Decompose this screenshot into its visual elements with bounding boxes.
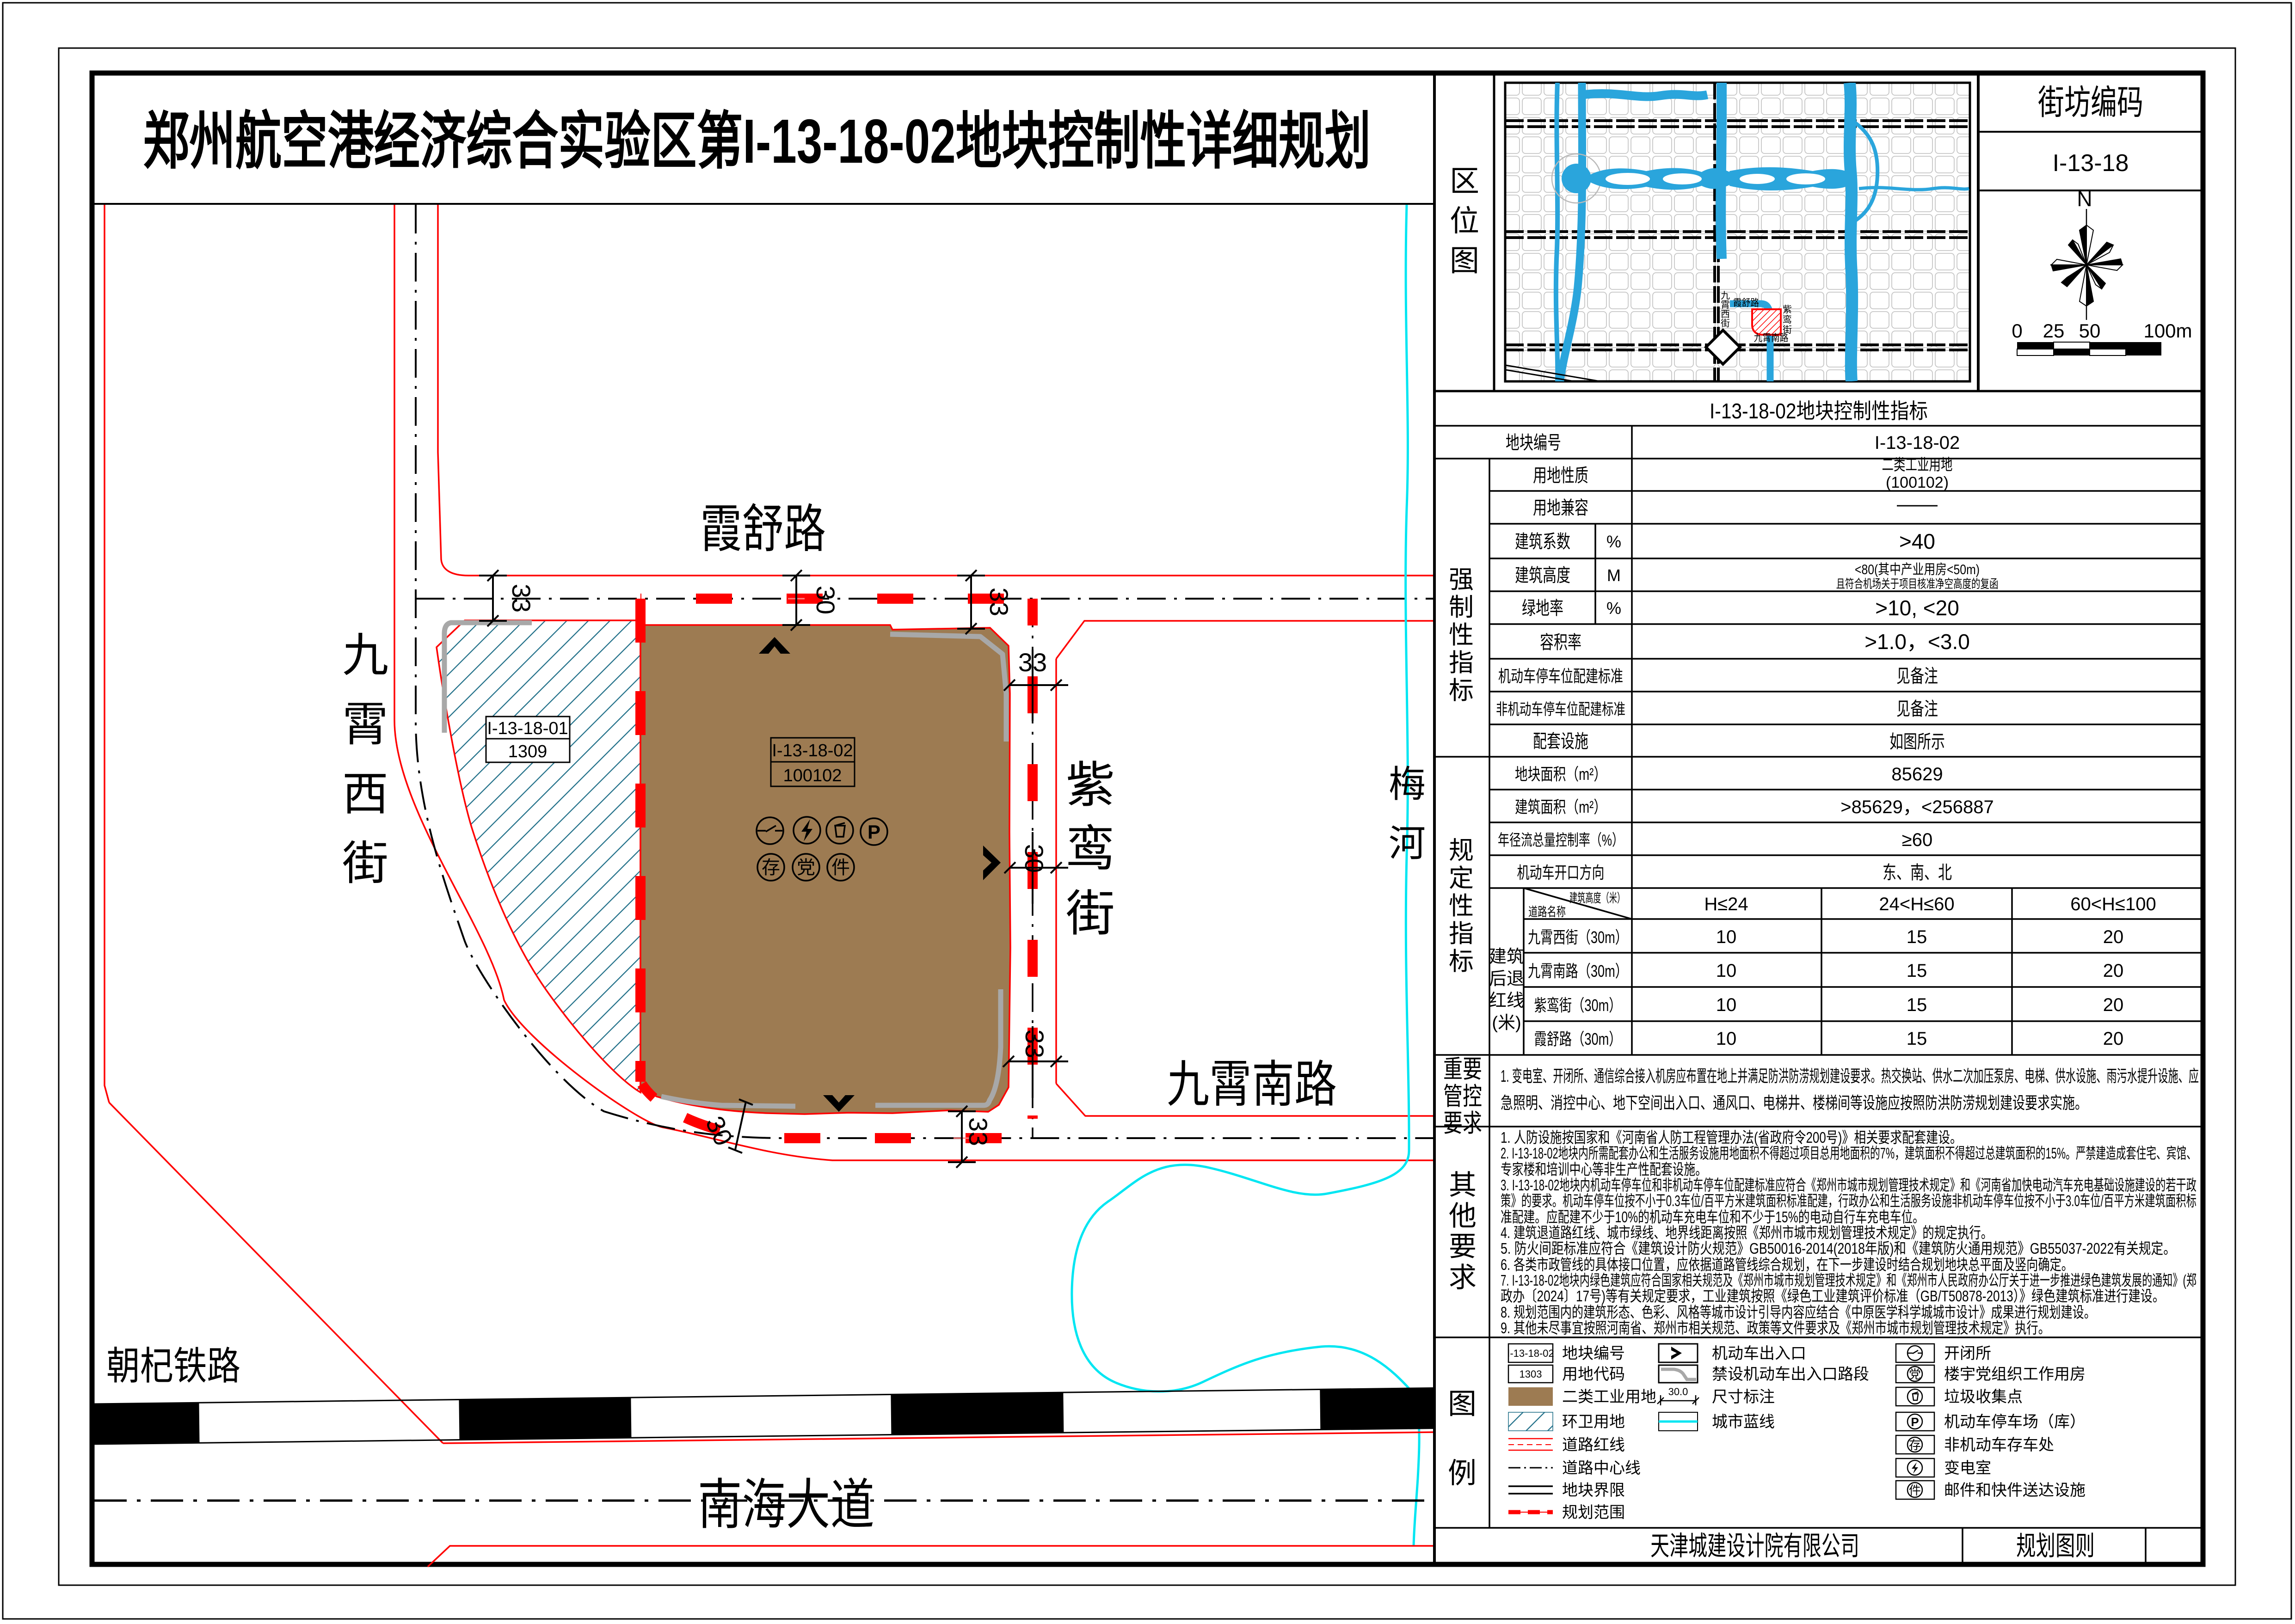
svg-text:策》的要求。机动车停车位按不小于0.3车位/百平方米建筑面积: 策》的要求。机动车停车位按不小于0.3车位/百平方米建筑面积标准配建，行政办公和… — [1501, 1192, 2197, 1209]
svg-text:30.0: 30.0 — [1668, 1386, 1688, 1397]
svg-text:建筑系数: 建筑系数 — [1515, 532, 1570, 552]
svg-text:P: P — [868, 821, 880, 843]
svg-text:存: 存 — [1909, 1438, 1921, 1452]
svg-text:用地代码: 用地代码 — [1562, 1366, 1625, 1383]
svg-text:件: 件 — [1909, 1483, 1921, 1497]
svg-text:规划范围: 规划范围 — [1562, 1504, 1625, 1521]
svg-text:1303: 1303 — [1520, 1368, 1542, 1380]
svg-text:非机动车存车处: 非机动车存车处 — [1944, 1436, 2054, 1454]
svg-text:N: N — [2077, 187, 2092, 211]
svg-text:配套设施: 配套设施 — [1533, 731, 1588, 752]
svg-text:0: 0 — [2012, 320, 2022, 342]
svg-text:准配建。应配建不少于10%的机动车充电车位和不少于15%的电: 准配建。应配建不少于10%的机动车充电车位和不少于15%的电动自行车充电车位。 — [1501, 1208, 1924, 1226]
svg-text:绿地率: 绿地率 — [1522, 598, 1563, 619]
svg-text:存: 存 — [762, 858, 780, 878]
svg-text:管控: 管控 — [1443, 1083, 1482, 1110]
svg-text:15: 15 — [1907, 927, 1927, 947]
svg-text:I-13-18-02地块控制性指标: I-13-18-02地块控制性指标 — [1710, 399, 1928, 423]
svg-text:河: 河 — [1389, 823, 1426, 864]
svg-text:朝杞铁路: 朝杞铁路 — [106, 1344, 240, 1388]
svg-text:后退: 后退 — [1489, 969, 1524, 989]
svg-text:%: % — [1606, 599, 1621, 618]
svg-text:10: 10 — [1716, 961, 1737, 981]
svg-text:地块编号: 地块编号 — [1506, 433, 1561, 453]
svg-text:变电室: 变电室 — [1944, 1459, 1991, 1477]
svg-text:梅: 梅 — [1389, 764, 1426, 805]
svg-text:性: 性 — [1449, 892, 1474, 920]
svg-text:规: 规 — [1449, 837, 1474, 864]
svg-text:30: 30 — [1020, 844, 1049, 873]
svg-text:求: 求 — [1449, 1262, 1477, 1293]
svg-text:街: 街 — [342, 838, 388, 889]
svg-text:24<H≤60: 24<H≤60 — [1879, 894, 1954, 914]
svg-text:二类工业用地: 二类工业用地 — [1882, 456, 1953, 474]
svg-text:且符合机场关于项目核准净空高度的复函: 且符合机场关于项目核准净空高度的复函 — [1836, 577, 1999, 591]
svg-text:I-13-18-02: I-13-18-02 — [772, 741, 853, 760]
svg-text:九霄南路: 九霄南路 — [1754, 333, 1789, 343]
svg-text:建筑面积（m²）: 建筑面积（m²） — [1515, 797, 1606, 816]
svg-text:I-13-18-02: I-13-18-02 — [1507, 1348, 1554, 1359]
svg-text:85629: 85629 — [1891, 764, 1943, 784]
svg-text:图: 图 — [1448, 1388, 1477, 1420]
svg-text:紫鸾街（30m）: 紫鸾街（30m） — [1534, 996, 1622, 1015]
svg-text:道路中心线: 道路中心线 — [1562, 1459, 1641, 1477]
svg-text:33: 33 — [984, 588, 1014, 616]
svg-text:标: 标 — [1449, 948, 1474, 975]
svg-text:图: 图 — [1450, 244, 1479, 277]
svg-text:机动车开口方向: 机动车开口方向 — [1517, 863, 1605, 882]
svg-text:10: 10 — [1716, 1029, 1737, 1049]
svg-text:机动车停车场（库）: 机动车停车场（库） — [1944, 1413, 2086, 1431]
svg-text:60<H≤100: 60<H≤100 — [2070, 894, 2156, 914]
svg-text:用地兼容: 用地兼容 — [1533, 498, 1588, 518]
svg-text:霄: 霄 — [342, 699, 388, 751]
svg-text:2. I-13-18-02地块内所需配套办公和生活服务设施用: 2. I-13-18-02地块内所需配套办公和生活服务设施用地面积不得超过项目总… — [1501, 1145, 2197, 1162]
svg-text:禁设机动车出入口路段: 禁设机动车出入口路段 — [1712, 1366, 1869, 1383]
svg-text:I-13-18: I-13-18 — [2053, 150, 2129, 177]
svg-text:霞舒路: 霞舒路 — [1733, 298, 1759, 308]
svg-text:九霄南路: 九霄南路 — [1167, 1056, 1337, 1112]
svg-text:位: 位 — [1450, 204, 1479, 238]
svg-text:九: 九 — [342, 630, 388, 681]
svg-text:>10, <20: >10, <20 — [1875, 596, 1959, 620]
svg-text:例: 例 — [1448, 1458, 1477, 1489]
svg-text:建筑: 建筑 — [1489, 947, 1524, 967]
svg-text:西: 西 — [1721, 309, 1730, 319]
svg-text:1309: 1309 — [508, 742, 548, 761]
svg-text:霞舒路（30m）: 霞舒路（30m） — [1534, 1030, 1622, 1048]
svg-text:100102: 100102 — [783, 766, 842, 785]
svg-text:邮件和快件送达设施: 邮件和快件送达设施 — [1944, 1482, 2086, 1499]
svg-text:(100102): (100102) — [1886, 474, 1949, 491]
svg-text:30: 30 — [811, 586, 840, 614]
svg-text:尺寸标注: 尺寸标注 — [1712, 1388, 1775, 1406]
svg-text:鸾: 鸾 — [1783, 314, 1792, 325]
svg-text:机动车停车位配建标准: 机动车停车位配建标准 — [1498, 667, 1623, 686]
svg-text:50: 50 — [2079, 320, 2101, 342]
svg-text:建筑高度（米）: 建筑高度（米） — [1569, 891, 1625, 905]
svg-text:城市蓝线: 城市蓝线 — [1712, 1413, 1775, 1431]
svg-text:33: 33 — [507, 584, 536, 613]
svg-text:>1.0，<3.0: >1.0，<3.0 — [1864, 630, 1970, 654]
svg-text:郑州航空港经济综合实验区第I-13-18-02地块控制性详细: 郑州航空港经济综合实验区第I-13-18-02地块控制性详细规划 — [143, 106, 1371, 176]
svg-text:天津城建设计院有限公司: 天津城建设计院有限公司 — [1650, 1531, 1859, 1561]
svg-text:9. 其他未尽事宜按照河南省、郑州市相关规范、政策等文件要求: 9. 其他未尽事宜按照河南省、郑州市相关规范、政策等文件要求及《郑州市城市规划管… — [1501, 1319, 2050, 1336]
svg-text:25: 25 — [2043, 320, 2065, 342]
svg-text:制: 制 — [1449, 594, 1474, 621]
svg-text:见备注: 见备注 — [1896, 666, 1938, 686]
svg-text:环卫用地: 环卫用地 — [1562, 1413, 1625, 1431]
svg-text:红线: 红线 — [1489, 991, 1524, 1011]
svg-text:(米): (米) — [1492, 1013, 1521, 1033]
svg-text:指: 指 — [1449, 920, 1474, 948]
svg-text:1. 变电室、开闭所、通信综合接入机房应布置在地上并满足防洪: 1. 变电室、开闭所、通信综合接入机房应布置在地上并满足防洪防涝规划建设要求。热… — [1501, 1066, 2199, 1085]
svg-text:I-13-18-01: I-13-18-01 — [487, 719, 568, 738]
svg-text:地块面积（m²）: 地块面积（m²） — [1515, 765, 1606, 784]
svg-text:鸾: 鸾 — [1066, 822, 1115, 876]
svg-text:100m: 100m — [2143, 320, 2192, 342]
svg-text:M: M — [1607, 566, 1621, 585]
svg-text:>85629，<256887: >85629，<256887 — [1840, 797, 1994, 817]
svg-text:4. 建筑退道路红线、城市绿线、地界线距离按照《郑州市城市规: 4. 建筑退道路红线、城市绿线、地界线距离按照《郑州市城市规划管理技术规定》的规… — [1501, 1224, 1993, 1241]
svg-text:20: 20 — [2103, 961, 2124, 981]
svg-text:街坊编码: 街坊编码 — [2038, 83, 2143, 122]
svg-text:>40: >40 — [1899, 529, 1935, 553]
svg-text:规划图则: 规划图则 — [2016, 1531, 2095, 1561]
svg-text:楼宇党组织工作用房: 楼宇党组织工作用房 — [1944, 1366, 2086, 1383]
svg-text:地块编号: 地块编号 — [1562, 1345, 1625, 1362]
svg-text:33: 33 — [1018, 648, 1047, 677]
svg-text:南海大道: 南海大道 — [698, 1475, 874, 1536]
svg-text:他: 他 — [1449, 1201, 1477, 1232]
svg-text:容积率: 容积率 — [1540, 632, 1581, 653]
svg-text:道路名称: 道路名称 — [1528, 905, 1566, 919]
svg-text:33: 33 — [1020, 1030, 1049, 1058]
svg-text:非机动车停车位配建标准: 非机动车停车位配建标准 — [1496, 701, 1625, 718]
svg-text:件: 件 — [831, 858, 850, 878]
svg-text:地块界限: 地块界限 — [1562, 1482, 1625, 1499]
svg-text:机动车出入口: 机动车出入口 — [1712, 1345, 1806, 1362]
svg-text:专家楼和培训中心等非生产性配套设施。: 专家楼和培训中心等非生产性配套设施。 — [1501, 1161, 1707, 1178]
svg-text:3. I-13-18-02地块内机动车停车位和非机动车停车位: 3. I-13-18-02地块内机动车停车位和非机动车停车位配建标准应符合《郑州… — [1501, 1177, 2197, 1194]
svg-text:政办〔2024〕17号)等有关规定要求，工业建筑按照《绿色工: 政办〔2024〕17号)等有关规定要求，工业建筑按照《绿色工业建筑评价标准（GB… — [1501, 1287, 2165, 1305]
svg-text:强: 强 — [1449, 566, 1474, 594]
svg-text:<80(其中产业用房<50m): <80(其中产业用房<50m) — [1855, 562, 1980, 577]
svg-text:1. 人防设施按国家和《河南省人防工程管理办法(省政府令20: 1. 人防设施按国家和《河南省人防工程管理办法(省政府令200号)》相关要求配套… — [1501, 1129, 1962, 1146]
svg-text:开闭所: 开闭所 — [1944, 1345, 1991, 1362]
svg-text:标: 标 — [1449, 677, 1474, 705]
svg-text:霞舒路: 霞舒路 — [700, 500, 826, 558]
svg-text:20: 20 — [2103, 1029, 2124, 1049]
svg-text:街: 街 — [1721, 318, 1730, 329]
svg-text:15: 15 — [1907, 1029, 1927, 1049]
svg-text:6. 各类市政管线的具体接口位置，应依据道路管线综合规划，在: 6. 各类市政管线的具体接口位置，应依据道路管线综合规划，在下一步建设时结合规划… — [1501, 1256, 2073, 1273]
svg-text:九: 九 — [1721, 290, 1730, 301]
svg-text:年径流总量控制率（%）: 年径流总量控制率（%） — [1498, 832, 1624, 849]
svg-text:紫: 紫 — [1066, 758, 1115, 813]
svg-text:如图所示: 如图所示 — [1889, 732, 1945, 752]
svg-text:东、南、北: 东、南、北 — [1883, 863, 1952, 883]
svg-text:急照明、消控中心、地下空间出入口、通风口、电梯井、楼梯间等设: 急照明、消控中心、地下空间出入口、通风口、电梯井、楼梯间等设施应按照防洪防涝规划… — [1501, 1093, 2087, 1112]
svg-text:7. I-13-18-02地块内绿色建筑应符合国家相关规范及: 7. I-13-18-02地块内绿色建筑应符合国家相关规范及《郑州市城市规划管理… — [1501, 1272, 2197, 1289]
svg-text:紫: 紫 — [1783, 304, 1792, 315]
svg-text:15: 15 — [1907, 995, 1927, 1015]
svg-text:≥60: ≥60 — [1902, 830, 1932, 850]
svg-text:%: % — [1606, 532, 1621, 551]
svg-text:其: 其 — [1449, 1170, 1477, 1201]
svg-text:定: 定 — [1449, 864, 1474, 892]
svg-text:西: 西 — [342, 768, 388, 820]
svg-text:I-13-18-02: I-13-18-02 — [1875, 433, 1960, 453]
svg-text:要求: 要求 — [1443, 1109, 1482, 1137]
svg-text:20: 20 — [2103, 927, 2124, 947]
svg-text:区: 区 — [1450, 165, 1479, 198]
svg-text:20: 20 — [2103, 995, 2124, 1015]
svg-text:道路红线: 道路红线 — [1562, 1436, 1625, 1454]
svg-text:8. 规划范围内的建筑形态、色彩、风格等城市设计引导内容应结: 8. 规划范围内的建筑形态、色彩、风格等城市设计引导内容应结合《中原医学科学城城… — [1501, 1304, 2096, 1321]
svg-text:党: 党 — [797, 858, 815, 878]
svg-text:九霄南路（30m）: 九霄南路（30m） — [1528, 962, 1628, 981]
svg-text:街: 街 — [1066, 887, 1115, 941]
svg-text:P: P — [1911, 1415, 1919, 1429]
svg-text:10: 10 — [1716, 927, 1737, 947]
svg-text:霄: 霄 — [1721, 300, 1730, 310]
svg-text:5. 防火间距标准应符合《建筑设计防火规范》GB50016-: 5. 防火间距标准应符合《建筑设计防火规范》GB50016-2014(2018年… — [1501, 1240, 2176, 1257]
svg-text:——: —— — [1897, 493, 1938, 515]
svg-text:重要: 重要 — [1443, 1055, 1482, 1083]
svg-text:性: 性 — [1449, 621, 1474, 649]
svg-text:二类工业用地: 二类工业用地 — [1562, 1388, 1656, 1406]
svg-text:党: 党 — [1909, 1367, 1921, 1381]
svg-text:九霄西街（30m）: 九霄西街（30m） — [1528, 928, 1628, 947]
svg-text:指: 指 — [1449, 649, 1474, 677]
svg-text:建筑高度: 建筑高度 — [1515, 565, 1570, 586]
svg-text:33: 33 — [964, 1117, 993, 1146]
svg-text:垃圾收集点: 垃圾收集点 — [1944, 1388, 2023, 1406]
svg-text:10: 10 — [1716, 995, 1737, 1015]
svg-text:要: 要 — [1449, 1231, 1477, 1262]
svg-text:用地性质: 用地性质 — [1533, 466, 1588, 486]
svg-text:H≤24: H≤24 — [1704, 894, 1748, 914]
svg-text:见备注: 见备注 — [1896, 699, 1938, 719]
svg-text:15: 15 — [1907, 961, 1927, 981]
